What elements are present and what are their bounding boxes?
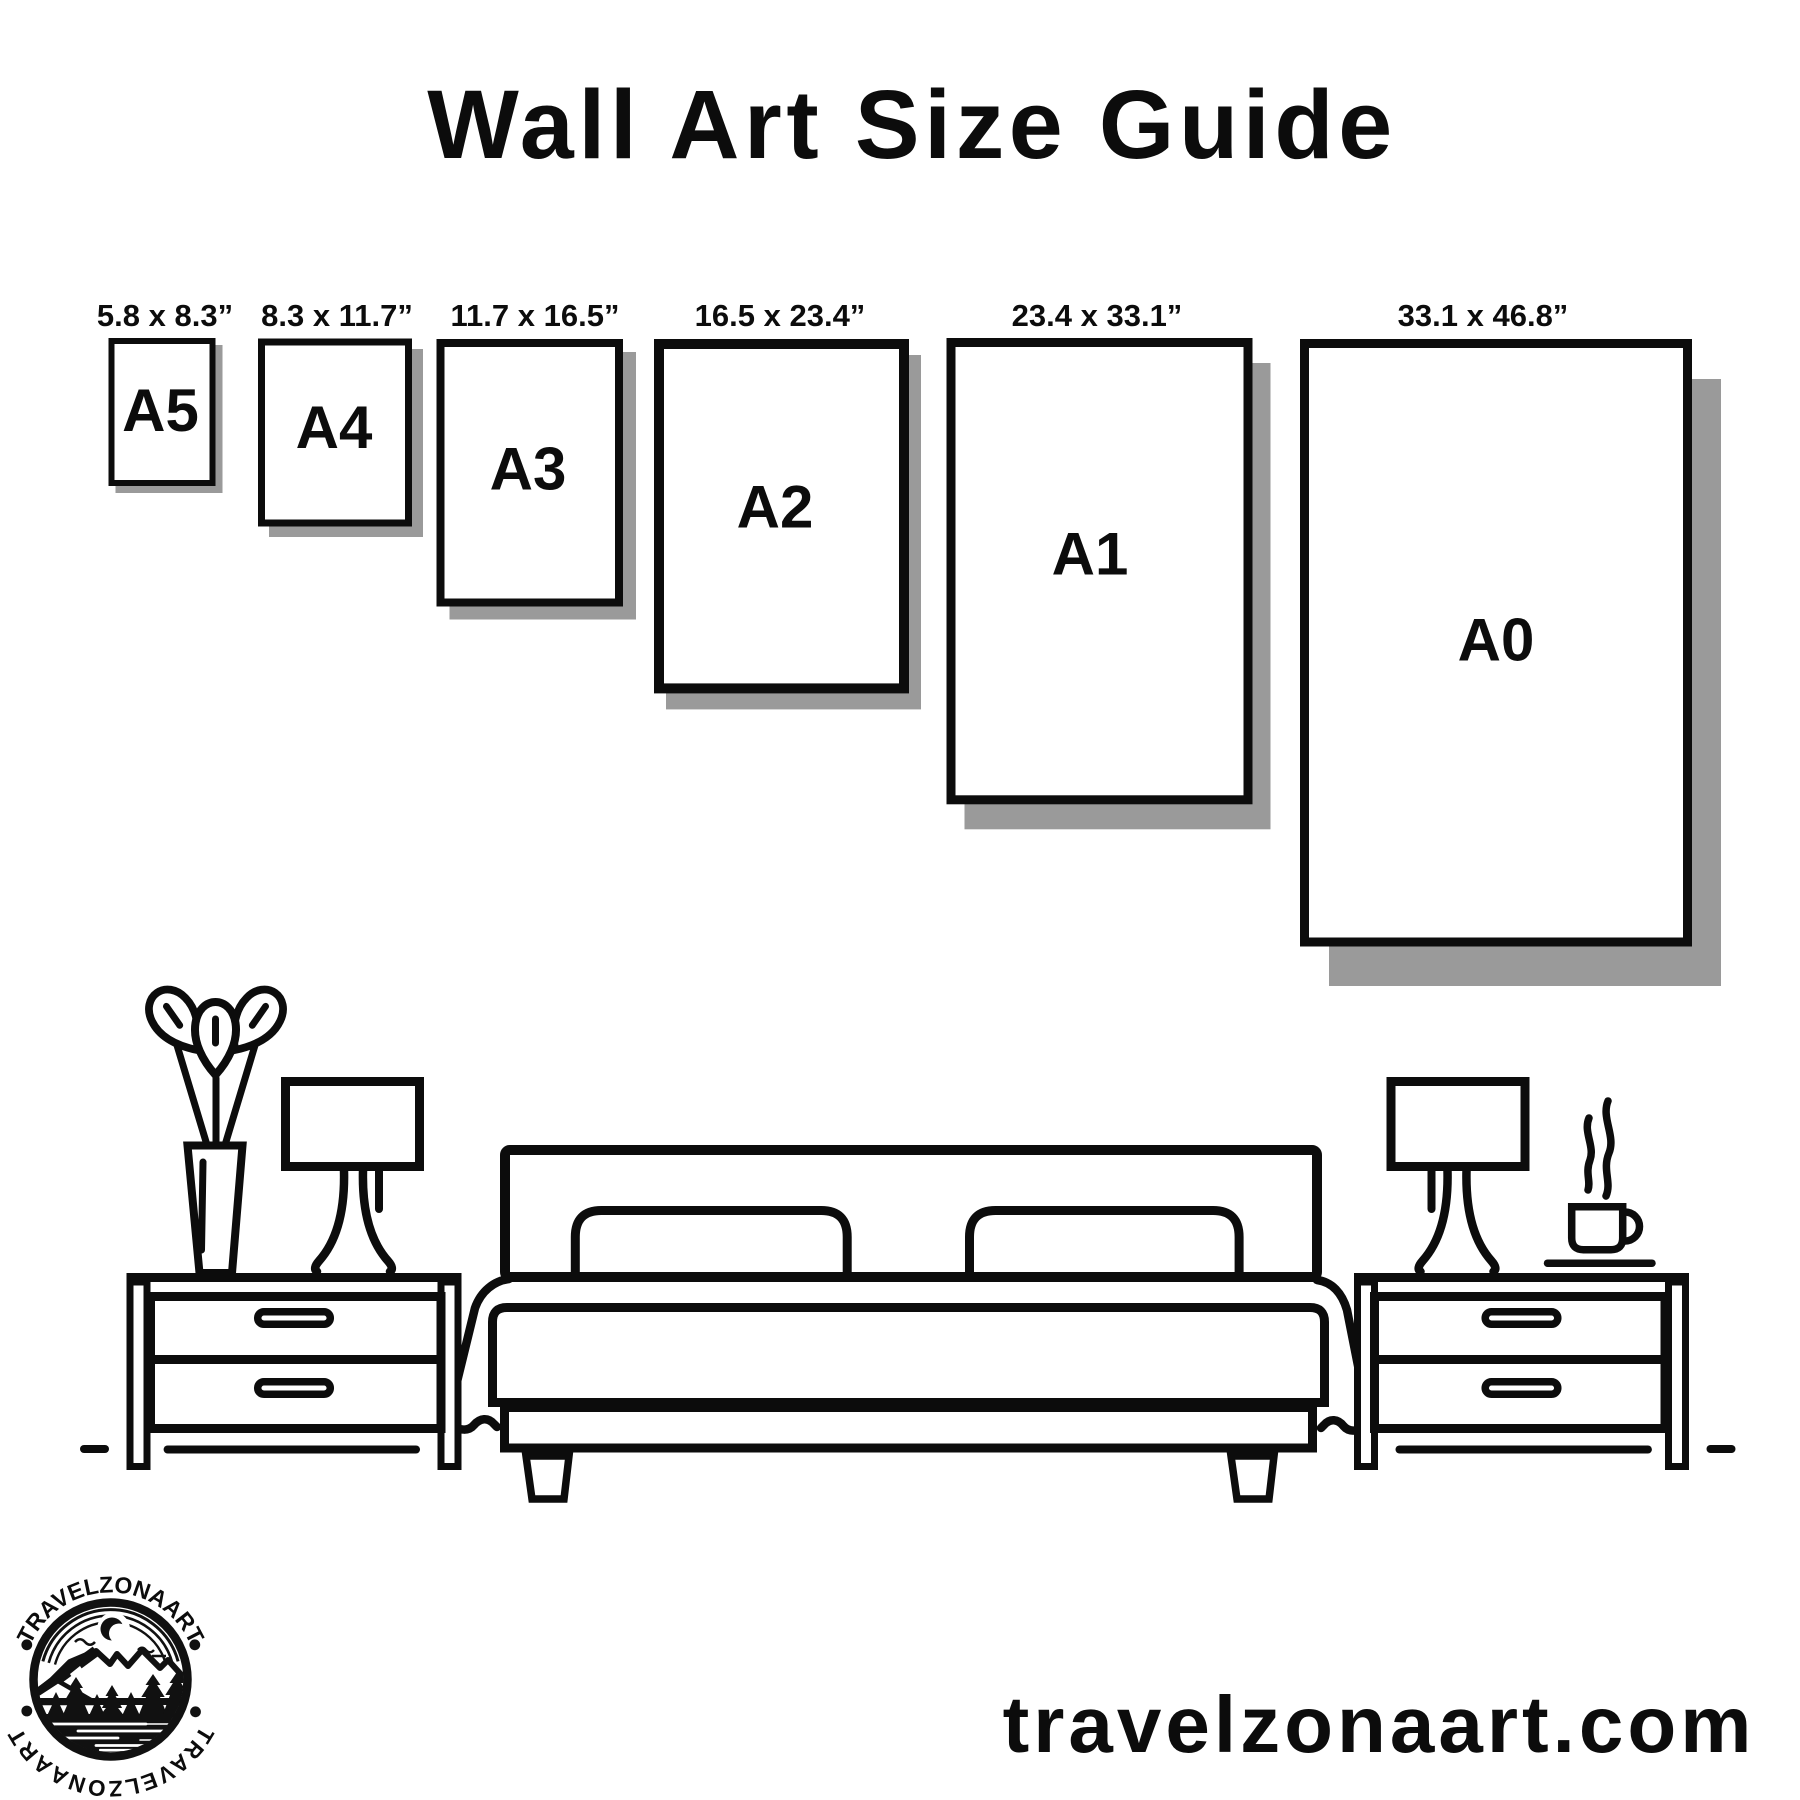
svg-text:A5: A5 bbox=[122, 377, 199, 444]
svg-text:A3: A3 bbox=[490, 436, 567, 503]
svg-text:A2: A2 bbox=[737, 473, 814, 540]
svg-text:A0: A0 bbox=[1458, 606, 1535, 673]
svg-text:Wall Art Size Guide: Wall Art Size Guide bbox=[427, 70, 1397, 179]
svg-text:16.5 x 23.4”: 16.5 x 23.4” bbox=[695, 298, 866, 333]
svg-text:travelzonaart.com: travelzonaart.com bbox=[1003, 1680, 1756, 1769]
svg-text:A4: A4 bbox=[296, 394, 373, 461]
svg-text:5.8 x 8.3”: 5.8 x 8.3” bbox=[97, 298, 233, 333]
svg-text:A1: A1 bbox=[1052, 520, 1129, 587]
svg-text:11.7 x 16.5”: 11.7 x 16.5” bbox=[451, 298, 620, 333]
svg-text:33.1 x 46.8”: 33.1 x 46.8” bbox=[1398, 298, 1569, 333]
svg-text:8.3 x 11.7”: 8.3 x 11.7” bbox=[261, 298, 413, 333]
svg-text:23.4 x 33.1”: 23.4 x 33.1” bbox=[1012, 298, 1183, 333]
